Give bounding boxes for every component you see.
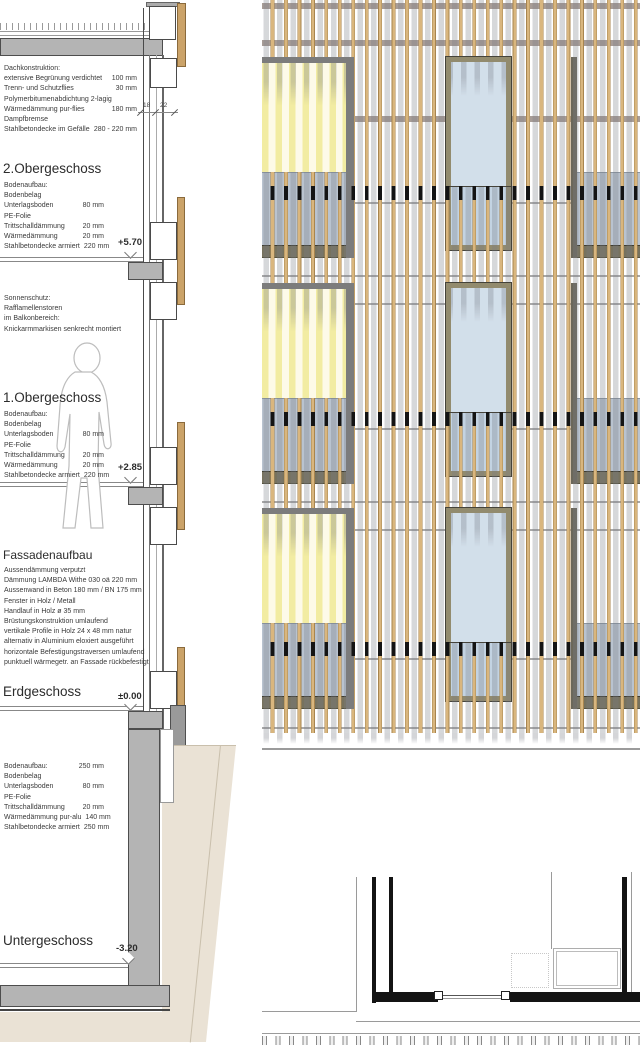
slat-shadow-tips xyxy=(262,514,346,556)
slat-shadow-tips xyxy=(262,733,640,744)
floor-slab-og2 xyxy=(128,262,163,280)
window-frame-section xyxy=(150,58,177,88)
basement-slab xyxy=(0,985,170,1007)
floor-line xyxy=(0,963,143,964)
ug-floor-note: Bodenaufbau:250 mmBodenbelagUnterlagsbod… xyxy=(4,762,104,833)
floor-line xyxy=(0,967,143,968)
floor-line xyxy=(0,706,143,707)
floor-line xyxy=(0,257,143,258)
og1-floor-note: Bodenaufbau:BodenbelagUnterlagsboden80 m… xyxy=(4,410,104,481)
floor-label-eg: Erdgeschoss xyxy=(3,684,81,699)
plan-wall-line xyxy=(631,872,632,992)
floor-line xyxy=(0,261,143,262)
window-frame-section xyxy=(150,671,177,709)
fixing-brackets-row xyxy=(262,412,640,426)
roof-slab xyxy=(0,38,163,56)
slat-shadow-tips xyxy=(262,63,346,105)
facade-elevation xyxy=(262,0,640,1055)
floor-label-og2: 2.Obergeschoss xyxy=(3,161,101,176)
fixing-brackets-row xyxy=(262,186,640,200)
timber-batten-og2 xyxy=(177,197,185,305)
plan-window-jamb xyxy=(434,991,443,1000)
awning-top-bar xyxy=(262,57,354,63)
note-rows: extensive Begrünung verdichtet100 mmTren… xyxy=(4,74,137,135)
bay-frame xyxy=(346,508,354,709)
timber-batten-parapet xyxy=(177,3,186,67)
fixing-brackets-row xyxy=(262,642,640,656)
floor-label-og1: 1.Obergeschoss xyxy=(3,390,101,405)
plan-facade-line xyxy=(262,1011,357,1012)
plan-wall xyxy=(372,992,438,1002)
awning-top-bar xyxy=(262,283,354,289)
window-frame-section xyxy=(150,282,177,320)
dim-label-18: 18 xyxy=(143,102,150,109)
plan-slat-row xyxy=(262,1036,640,1045)
plan-wall-line xyxy=(356,877,357,1012)
note-title: Dachkonstruktion: xyxy=(4,64,137,74)
perimeter-insulation xyxy=(160,729,174,803)
dim-label-22: 22 xyxy=(160,102,167,109)
bay-frame xyxy=(346,283,354,484)
window-frame-section xyxy=(150,447,177,485)
note-rows: Bodenaufbau:BodenbelagUnterlagsboden80 m… xyxy=(4,410,104,481)
floor-line xyxy=(0,710,143,711)
note-rows: Bodenaufbau:250 mmBodenbelagUnterlagsbod… xyxy=(4,762,104,833)
window-1-upper-glass xyxy=(446,57,511,186)
roof-construction-note: Dachkonstruktion: extensive Begrünung ve… xyxy=(4,64,137,135)
window-2-upper-glass xyxy=(446,283,511,412)
plan-wall-line xyxy=(551,872,552,949)
roof-layer-line xyxy=(0,31,152,32)
plan-glazing-line xyxy=(443,998,505,999)
plan-furniture xyxy=(553,948,621,989)
floor-label-ug: Untergeschoss xyxy=(3,933,93,948)
slat-shadow-tips xyxy=(262,289,346,331)
green-roof-hatch xyxy=(0,23,150,30)
plan-dashed-zone xyxy=(511,953,549,988)
window-3-upper-glass xyxy=(446,508,511,642)
ground-line xyxy=(262,748,640,750)
plan-wall xyxy=(510,992,640,1002)
architectural-drawing: 18 22 xyxy=(0,0,640,1055)
window-frame-section xyxy=(150,507,177,545)
slat-shadow-tips xyxy=(446,62,511,96)
slab-underside-line xyxy=(0,1009,170,1011)
plan-wall xyxy=(622,877,627,997)
slat-shadow-tips xyxy=(446,513,511,547)
note-lines: Aussendämmung verputztDämmung LAMBDA Wit… xyxy=(4,566,154,668)
og2-floor-note: Bodenaufbau:BodenbelagUnterlagsboden80 m… xyxy=(4,181,104,252)
balcony-awning xyxy=(262,63,346,172)
plan-glazing-line xyxy=(443,995,505,996)
parapet xyxy=(149,6,176,40)
roof-layer-line xyxy=(0,35,152,36)
note-lines: Sonnenschutz:Rafflamellenstorenim Balkon… xyxy=(4,294,154,335)
plan-wall xyxy=(389,877,393,993)
plan-facade-line xyxy=(356,1021,640,1022)
facade-note-title: Fassadenaufbau xyxy=(3,548,92,562)
balcony-awning xyxy=(262,289,346,398)
plan-wall xyxy=(372,877,376,1003)
sun-protection-note: Sonnenschutz:Rafflamellenstorenim Balkon… xyxy=(4,294,154,335)
plan-slat-line xyxy=(262,1033,640,1034)
plan-window-jamb xyxy=(501,991,510,1000)
balcony-awning xyxy=(262,514,346,623)
awning-top-bar xyxy=(262,508,354,514)
facade-buildup-note: Aussendämmung verputztDämmung LAMBDA Wit… xyxy=(4,566,154,668)
floor-slab-eg xyxy=(128,711,163,729)
slat-shadow-tips xyxy=(446,288,511,322)
timber-batten-og1 xyxy=(177,422,185,530)
window-frame-section xyxy=(150,222,177,260)
bay-frame xyxy=(346,57,354,258)
note-rows: Bodenaufbau:BodenbelagUnterlagsboden80 m… xyxy=(4,181,104,252)
